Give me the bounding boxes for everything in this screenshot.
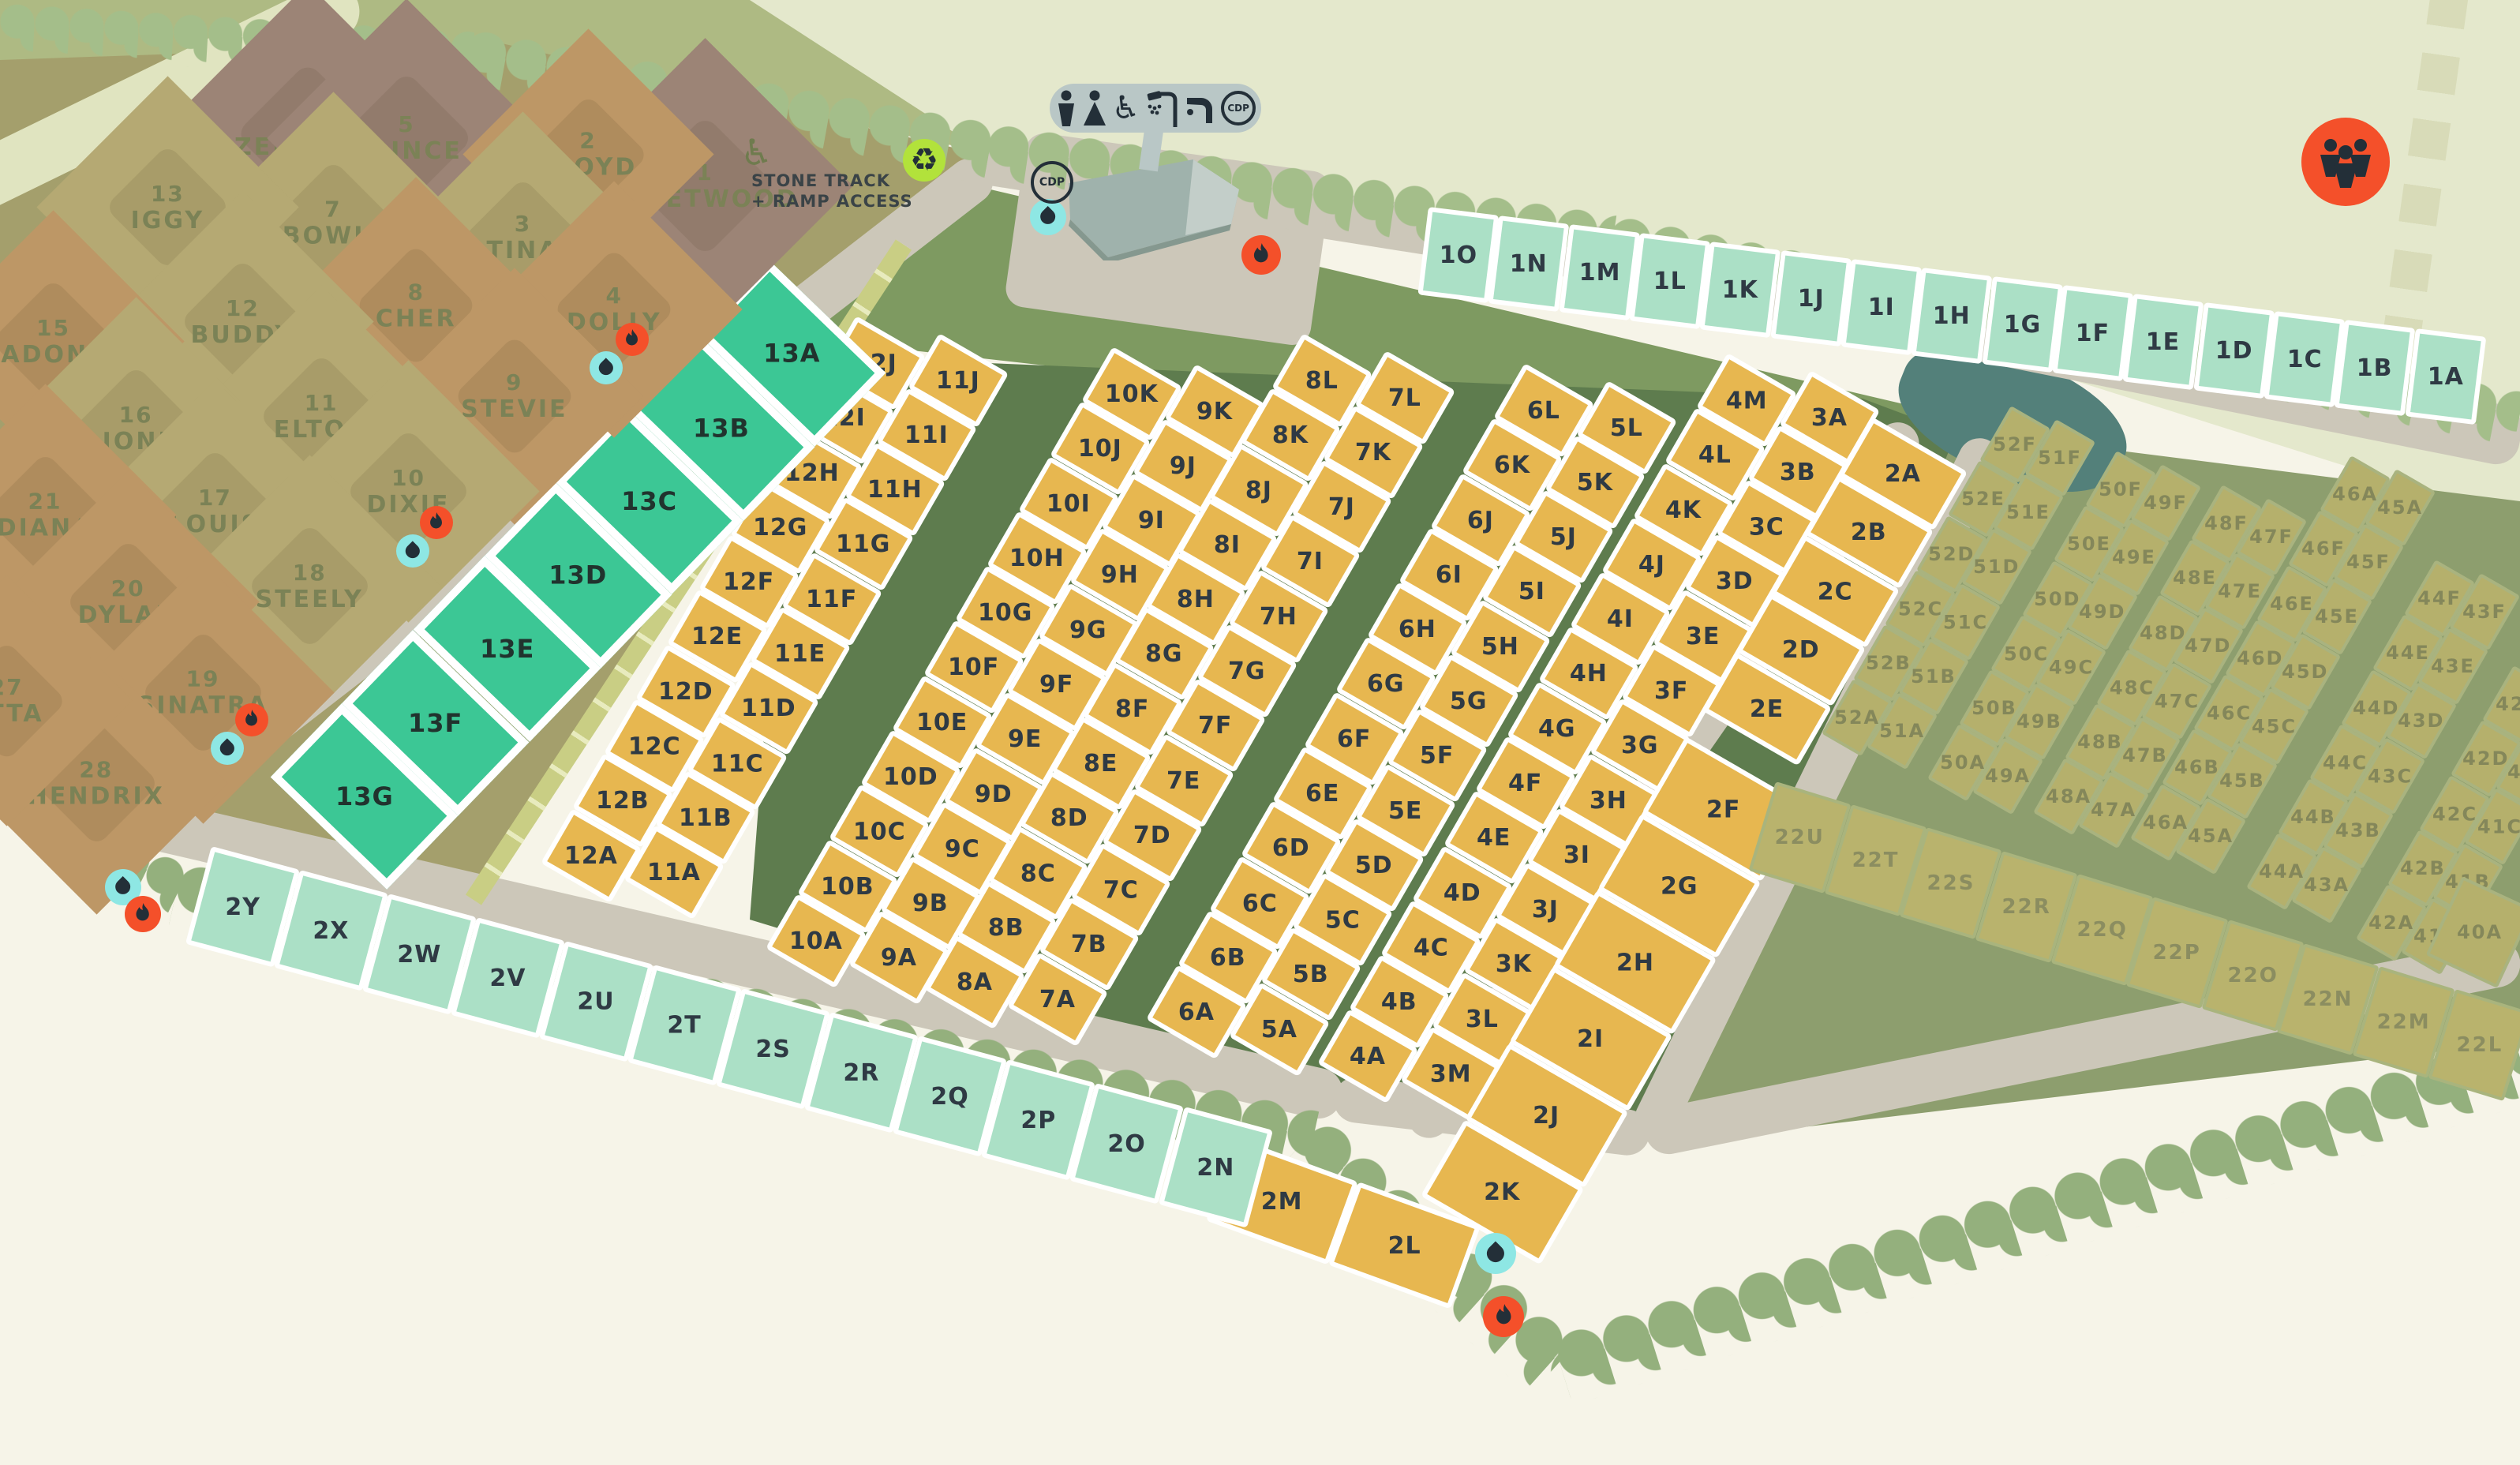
plot-label: 44D [2353, 697, 2399, 719]
plot-label: 4C [1414, 933, 1449, 961]
plot-label: 2A [1885, 460, 1921, 488]
plot-label: 45D [2282, 661, 2329, 683]
plot-label: 9J [1170, 451, 1196, 479]
plot-label: 6A [1178, 999, 1215, 1026]
plot-label: 2H [1616, 949, 1654, 976]
plot-label: 4H [1570, 660, 1608, 688]
plot-label: 11C [711, 749, 764, 777]
plot-label: 51B [1911, 665, 1956, 688]
plot-label: 2V [490, 964, 526, 991]
plot-label: 46A [2143, 811, 2189, 834]
plot-label: 7B [1072, 931, 1108, 958]
plot-label: 7H [1260, 602, 1297, 630]
plot-label: 3J [1532, 896, 1559, 924]
plot-label: 2O [1108, 1130, 1146, 1158]
plot-label: 11B [680, 804, 733, 831]
plot-name: IGGY [130, 206, 204, 234]
plot-label: 10C [853, 818, 906, 845]
plot-label: 45F [2346, 551, 2391, 573]
plot-name: STEVIE [461, 395, 567, 423]
plot-1M[interactable]: 1M [1559, 224, 1640, 320]
plot-label: 6I [1436, 560, 1462, 588]
plot-label: 8I [1214, 530, 1241, 558]
plot-label: 10G [978, 599, 1032, 627]
plot-label: 8L [1305, 367, 1339, 395]
plot-label: 49D [2080, 601, 2126, 624]
plot-label: 12A [564, 841, 618, 869]
plot-number: 28 [80, 756, 114, 782]
plot-label: 4B [1381, 988, 1417, 1016]
water-icon [590, 351, 623, 384]
plot-label: 9C [945, 834, 980, 862]
plot-label: 2Y [225, 893, 260, 920]
plot-label: 47F [2249, 526, 2293, 548]
plot-label: 3C [1749, 513, 1784, 541]
plot-label: 7J [1328, 493, 1355, 521]
plot-label: 42B [2400, 857, 2446, 879]
plot-label: 9H [1101, 561, 1139, 589]
plot-label: 52D [1928, 543, 1975, 565]
plot-label: 10H [1009, 544, 1065, 571]
plot-label: 42E [2496, 693, 2520, 715]
plot-label: 52F [1993, 433, 2037, 455]
plot-label: 1L [1653, 267, 1687, 294]
plot-number: 7 [324, 196, 341, 222]
plot-label: 11A [648, 859, 702, 886]
plot-1D[interactable]: 1D [2193, 302, 2275, 399]
plot-label: 43E [2431, 655, 2475, 677]
plot-label: 43B [2335, 819, 2381, 841]
plot-label: 51D [1974, 556, 2020, 579]
plot-number: 21 [28, 488, 62, 514]
plot-number: 19 [186, 665, 220, 691]
plot-label: 9K [1196, 397, 1233, 425]
plot-label: 4A [1350, 1043, 1386, 1070]
plot-label: 2E [1750, 695, 1784, 723]
plot-label: 2C [1818, 578, 1853, 605]
plot-label: 42D [2462, 747, 2509, 770]
plot-label: 3D [1717, 568, 1754, 595]
plot-label: 3B [1780, 458, 1817, 485]
plot-1K[interactable]: 1K [1700, 242, 1781, 338]
plot-label: 11I [905, 421, 949, 448]
plot-label: 11D [742, 695, 797, 722]
plot-label: 4M [1726, 387, 1768, 414]
plot-label: 4E [1477, 824, 1511, 852]
cdp-legend-badge: CDP [1221, 91, 1256, 126]
plot-label: 9A [881, 944, 917, 972]
plot-1N[interactable]: 1N [1488, 215, 1570, 312]
plot-label: 2S [755, 1035, 790, 1062]
plot-number: 13 [151, 180, 185, 206]
plot-label: 10I [1047, 489, 1091, 517]
plot-label: 44A [2259, 861, 2305, 883]
plot-1J[interactable]: 1J [1770, 250, 1852, 347]
plot-label: 1G [2004, 310, 2042, 338]
plot-number: 18 [293, 559, 327, 585]
plot-label: 49C [2049, 656, 2094, 678]
plot-label: 50E [2067, 533, 2111, 555]
plot-label: 6B [1210, 943, 1246, 971]
plot-label: 47B [2122, 744, 2168, 766]
water-icon [396, 534, 429, 568]
plot-label: 12G [753, 513, 807, 541]
plot-label: 4K [1665, 496, 1702, 523]
plot-label: 3K [1496, 950, 1532, 978]
water-icon [211, 732, 244, 765]
plot-label: 1N [1510, 250, 1548, 278]
plot-label: 8G [1145, 640, 1183, 668]
plot-label: 8K [1272, 422, 1309, 449]
plot-label: 9B [913, 890, 949, 917]
plot-label: 3A [1811, 403, 1848, 431]
plot-label: 5H [1481, 632, 1519, 660]
plot-label: 41D [2508, 761, 2520, 783]
plot-label: 51A [1879, 720, 1925, 742]
plot-label: 9F [1040, 671, 1074, 699]
plot-label: 2K [1485, 1178, 1521, 1206]
plot-label: 6J [1467, 506, 1494, 534]
plot-label: 2N [1196, 1154, 1234, 1182]
plot-label: 22L [2456, 1033, 2503, 1057]
plot-label: 22Q [2076, 918, 2127, 942]
plot-label: 22S [1927, 872, 1975, 896]
plot-label: 44C [2323, 751, 2368, 774]
plot-label: 13B [692, 412, 749, 442]
plot-label: 5B [1294, 961, 1330, 988]
plot-label: 13F [408, 708, 462, 738]
plot-label: 5I [1518, 578, 1545, 605]
plot-label: 5E [1389, 796, 1423, 824]
plot-label: 11E [775, 640, 826, 668]
water-icon [1030, 199, 1066, 235]
plot-label: 1A [2427, 362, 2463, 390]
plot-1O[interactable]: 1O [1417, 207, 1499, 303]
plot-label: 42A [2368, 912, 2414, 934]
plot-label: 22M [2377, 1010, 2431, 1034]
plot-label: 2T [668, 1011, 702, 1039]
male-icon [1055, 90, 1077, 126]
plot-label: 45E [2315, 606, 2359, 628]
plot-1G[interactable]: 1G [1982, 276, 2063, 373]
plot-label: 41C [2477, 816, 2520, 838]
plot-label: 6G [1367, 670, 1405, 698]
plot-label: 1D [2215, 336, 2253, 364]
plot-label: 1O [1440, 242, 1477, 269]
plot-label: 45A [2377, 496, 2423, 519]
plot-label: 2P [1020, 1107, 1056, 1134]
plot-label: 3G [1622, 732, 1660, 759]
plot-label: 13C [621, 486, 677, 516]
plot-label: 46C [2207, 702, 2252, 724]
plot-label: 47E [2218, 580, 2262, 602]
plot-number: 11 [305, 389, 339, 415]
plot-label: 4I [1607, 605, 1634, 633]
plot-label: 8A [957, 969, 993, 996]
plot-label: 11H [868, 476, 923, 504]
plot-label: 6E [1305, 780, 1339, 807]
plot-label: 51C [1943, 611, 1988, 633]
plot-label: 5A [1261, 1015, 1297, 1043]
plot-1A[interactable]: 1A [2405, 328, 2486, 425]
plot-label: 11J [937, 366, 981, 394]
plot-number: 20 [111, 575, 145, 601]
plot-number: 8 [407, 279, 424, 305]
tap-icon [1184, 92, 1215, 125]
plot-number: 4 [605, 283, 622, 309]
plot-label: 7L [1388, 384, 1421, 411]
plot-label: 50F [2099, 478, 2143, 500]
plot-label: 43F [2462, 601, 2507, 623]
plot-label: 22P [2153, 941, 2201, 965]
plot-number: 15 [36, 314, 70, 340]
plot-number: 17 [198, 484, 232, 510]
plot-label: 44F [2417, 587, 2462, 609]
plot-label: 43A [2304, 874, 2350, 896]
plot-label: 10A [789, 927, 843, 954]
plot-label: 52C [1898, 598, 1943, 620]
plot-label: 48C [2110, 676, 2155, 699]
plot-label: 1H [1933, 302, 1971, 329]
plot-label: 10D [883, 763, 938, 791]
plot-label: 3F [1655, 677, 1689, 705]
plot-label: 48F [2204, 512, 2249, 534]
plot-label: 2U [578, 987, 615, 1015]
plot-label: 49E [2112, 546, 2156, 568]
plot-label: 47C [2155, 690, 2200, 712]
plot-label: 44E [2386, 642, 2430, 664]
plot-label: 6L [1527, 397, 1560, 425]
cdp-badge: CDP [1031, 161, 1073, 204]
plot-label: 46D [2237, 647, 2283, 669]
female-icon [1083, 90, 1106, 126]
plot-label: 51F [2038, 447, 2082, 469]
plot-label: 47D [2185, 635, 2232, 658]
plot-label: 22T [1852, 849, 1899, 872]
plot-label: 1F [2076, 319, 2110, 347]
plot-label: 43D [2398, 710, 2445, 732]
plot-number: 5 [398, 111, 414, 137]
plot-label: 5C [1325, 906, 1361, 934]
plot-label: 50B [1971, 697, 2017, 719]
plot-label: 2D [1782, 636, 1820, 664]
plot-label: 52B [1866, 652, 1912, 674]
plot-label: 48E [2173, 567, 2217, 589]
plot-label: 8B [988, 913, 1024, 941]
plot-label: 9D [975, 780, 1013, 807]
plot-label: 46A [2332, 483, 2378, 505]
plot-label: 7D [1134, 821, 1172, 849]
plot-name: ETTA [0, 699, 43, 727]
plot-label: 22N [2303, 987, 2353, 1011]
plot-label: 10B [821, 872, 874, 900]
plot-label: 3I [1563, 841, 1590, 868]
plot-label: 47A [2091, 799, 2136, 821]
plot-1C[interactable]: 1C [2264, 311, 2345, 407]
plot-label: 7A [1039, 985, 1076, 1013]
plot-label: 51E [2006, 501, 2050, 523]
plot-label: 5G [1451, 688, 1488, 715]
plot-label: 3H [1590, 786, 1627, 814]
shower-icon [1145, 89, 1178, 127]
plot-label: 9I [1138, 507, 1165, 534]
plot-1E[interactable]: 1E [2123, 294, 2204, 390]
plot-label: 7I [1297, 548, 1324, 575]
plot-label: 2M [1261, 1187, 1303, 1215]
plot-label: 1B [2357, 354, 2393, 381]
plot-label: 4D [1443, 879, 1481, 906]
plot-label: 46B [2174, 757, 2220, 779]
plot-label: 22R [2001, 895, 2050, 919]
plot-number: 27 [0, 673, 23, 699]
plot-label: 8C [1020, 859, 1056, 886]
plot-label: 2F [1706, 796, 1740, 823]
plot-number: 16 [119, 401, 153, 427]
plot-label: 7C [1103, 876, 1139, 904]
plot-label: 10F [949, 654, 1000, 681]
plot-label: 48D [2140, 622, 2186, 644]
plot-label: 2J [1533, 1102, 1560, 1130]
fire-icon [1241, 235, 1281, 275]
plot-label: 7E [1167, 766, 1201, 794]
plot-label: 4G [1538, 714, 1576, 742]
plot-label: 8J [1245, 476, 1272, 504]
plot-label: 3M [1430, 1060, 1472, 1088]
plot-label: 45A [2188, 825, 2234, 847]
plot-label: 8D [1050, 804, 1088, 832]
plot-label: 1K [1722, 275, 1758, 303]
fire-icon [420, 506, 453, 539]
plot-1B[interactable]: 1B [2335, 320, 2416, 416]
plot-label: 12F [724, 568, 775, 596]
plot-label: 46F [2301, 538, 2346, 560]
plot-name: CHER [376, 305, 457, 332]
plot-label: 2L [1387, 1232, 1421, 1260]
plot-label: 5K [1577, 468, 1613, 496]
plot-label: 1E [2146, 328, 2180, 355]
water-icon [1475, 1233, 1516, 1274]
plot-label: 2G [1661, 872, 1698, 900]
plot-number: 9 [506, 369, 522, 395]
plot-label: 4F [1508, 770, 1542, 797]
plot-label: 45B [2219, 770, 2265, 792]
fire-icon [125, 896, 161, 932]
plot-label: 13A [763, 339, 820, 369]
plot-label: 12E [692, 623, 743, 650]
plot-label: 50A [1940, 752, 1986, 774]
plot-label: 5J [1550, 523, 1577, 551]
plot-label: 2Q [931, 1083, 969, 1111]
plot-label: 49F [2144, 492, 2188, 514]
plot-label: 11G [837, 530, 891, 558]
plot-1H[interactable]: 1H [1912, 268, 1993, 364]
plot-label: 2X [313, 916, 349, 944]
plot-label: 11F [807, 585, 858, 613]
plot-name: STEELY [255, 585, 363, 613]
plot-1L[interactable]: 1L [1629, 233, 1710, 329]
plot-label: 1M [1578, 258, 1620, 286]
fleetwood-wheelchair-icon: ♿ [740, 131, 773, 174]
plot-label: 3L [1466, 1005, 1499, 1032]
plot-label: 2B [1851, 519, 1887, 546]
plot-label: 1J [1797, 284, 1824, 312]
plot-label: 13D [549, 560, 608, 590]
plot-label: 12D [658, 677, 713, 705]
plot-number: 10 [391, 464, 425, 490]
plot-label: 3E [1687, 622, 1721, 650]
plot-number: 3 [514, 210, 530, 236]
plot-label: 1C [2286, 345, 2322, 373]
plot-label: 50C [2004, 643, 2049, 665]
plot-label: 5D [1356, 851, 1394, 879]
fire-icon [235, 703, 268, 736]
plot-label: 52E [1961, 488, 2005, 510]
plot-label: 6F [1337, 725, 1371, 752]
plot-label: 13G [335, 781, 394, 811]
plot-label: 8F [1115, 695, 1149, 722]
plot-label: 48A [2046, 786, 2091, 808]
plot-label: 12C [628, 732, 681, 760]
plot-name: HENDRIX [28, 782, 165, 810]
plot-label: 6D [1272, 834, 1310, 862]
plot-label: 22O [2227, 964, 2278, 987]
plot-label: 4L [1698, 441, 1732, 469]
plot-label: 40A [2457, 921, 2503, 943]
plot-label: 1I [1868, 293, 1895, 320]
plot-label: 7G [1229, 658, 1267, 685]
plot-label: 49A [1985, 765, 2031, 787]
plot-label: 5F [1421, 742, 1455, 770]
plot-label: 10J [1078, 435, 1122, 463]
plot-label: 46E [2270, 593, 2314, 615]
plot-label: 49B [2016, 710, 2062, 732]
plot-label: 22U [1775, 826, 1825, 849]
plot-number: 2 [579, 127, 596, 153]
plot-label: 45C [2252, 715, 2297, 737]
plot-label: 50D [2034, 588, 2080, 610]
plot-label: 4J [1638, 550, 1665, 578]
plot-label: 7F [1199, 712, 1233, 740]
plot-label: 42C [2432, 803, 2477, 825]
plot-label: 8H [1177, 586, 1215, 613]
plot-label: 13E [480, 634, 534, 664]
plot-label: 6C [1242, 889, 1278, 916]
plot-label: 6H [1399, 616, 1436, 643]
campsite-map: ♿ CDP CDP STONE TRACK + RAMP ACCESS ♻ ♿ … [0, 0, 2520, 1465]
plot-1I[interactable]: 1I [1840, 259, 1922, 355]
people-meeting-icon [2301, 118, 2390, 206]
facilities-building [1067, 158, 1241, 260]
plot-1F[interactable]: 1F [2052, 285, 2133, 381]
plot-label: 10K [1105, 380, 1159, 408]
wheelchair-icon: ♿ [1112, 92, 1140, 124]
plot-label: 10E [917, 708, 968, 736]
plot-label: 8E [1084, 750, 1118, 777]
stone-track-label: STONE TRACK + RAMP ACCESS [751, 170, 925, 212]
plot-label: 48B [2077, 731, 2123, 753]
plot-number: 12 [226, 294, 260, 320]
plot-label: 44B [2290, 806, 2336, 828]
plot-label: 52A [1834, 707, 1880, 729]
fire-icon [616, 323, 649, 356]
plot-label: 2I [1578, 1025, 1604, 1053]
plot-label: 43C [2368, 765, 2413, 787]
plot-label: 9G [1070, 616, 1108, 643]
facilities-legend: ♿ CDP [1050, 84, 1261, 133]
plot-label: 2R [844, 1058, 880, 1086]
plot-label: 12B [596, 787, 650, 815]
plot-label: 5L [1610, 414, 1643, 441]
